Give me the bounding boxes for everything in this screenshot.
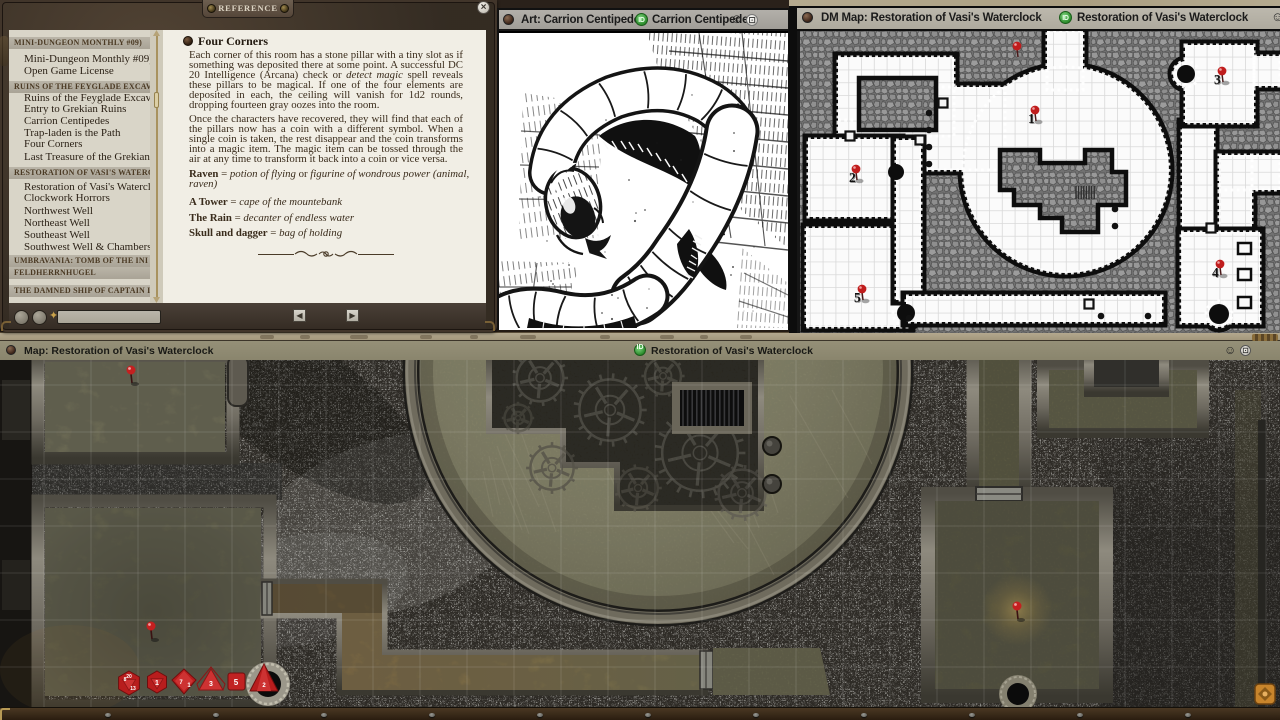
svg-text:3: 3	[1214, 72, 1221, 87]
svg-text:1: 1	[155, 680, 159, 687]
svg-text:3: 3	[209, 681, 213, 688]
svg-text:20: 20	[126, 674, 132, 680]
svg-text:1: 1	[1028, 111, 1035, 126]
svg-text:2: 2	[849, 170, 856, 185]
svg-text:5: 5	[234, 678, 239, 687]
svg-text:13: 13	[130, 686, 136, 692]
svg-text:5: 5	[854, 290, 861, 305]
svg-text:4: 4	[1212, 265, 1219, 280]
